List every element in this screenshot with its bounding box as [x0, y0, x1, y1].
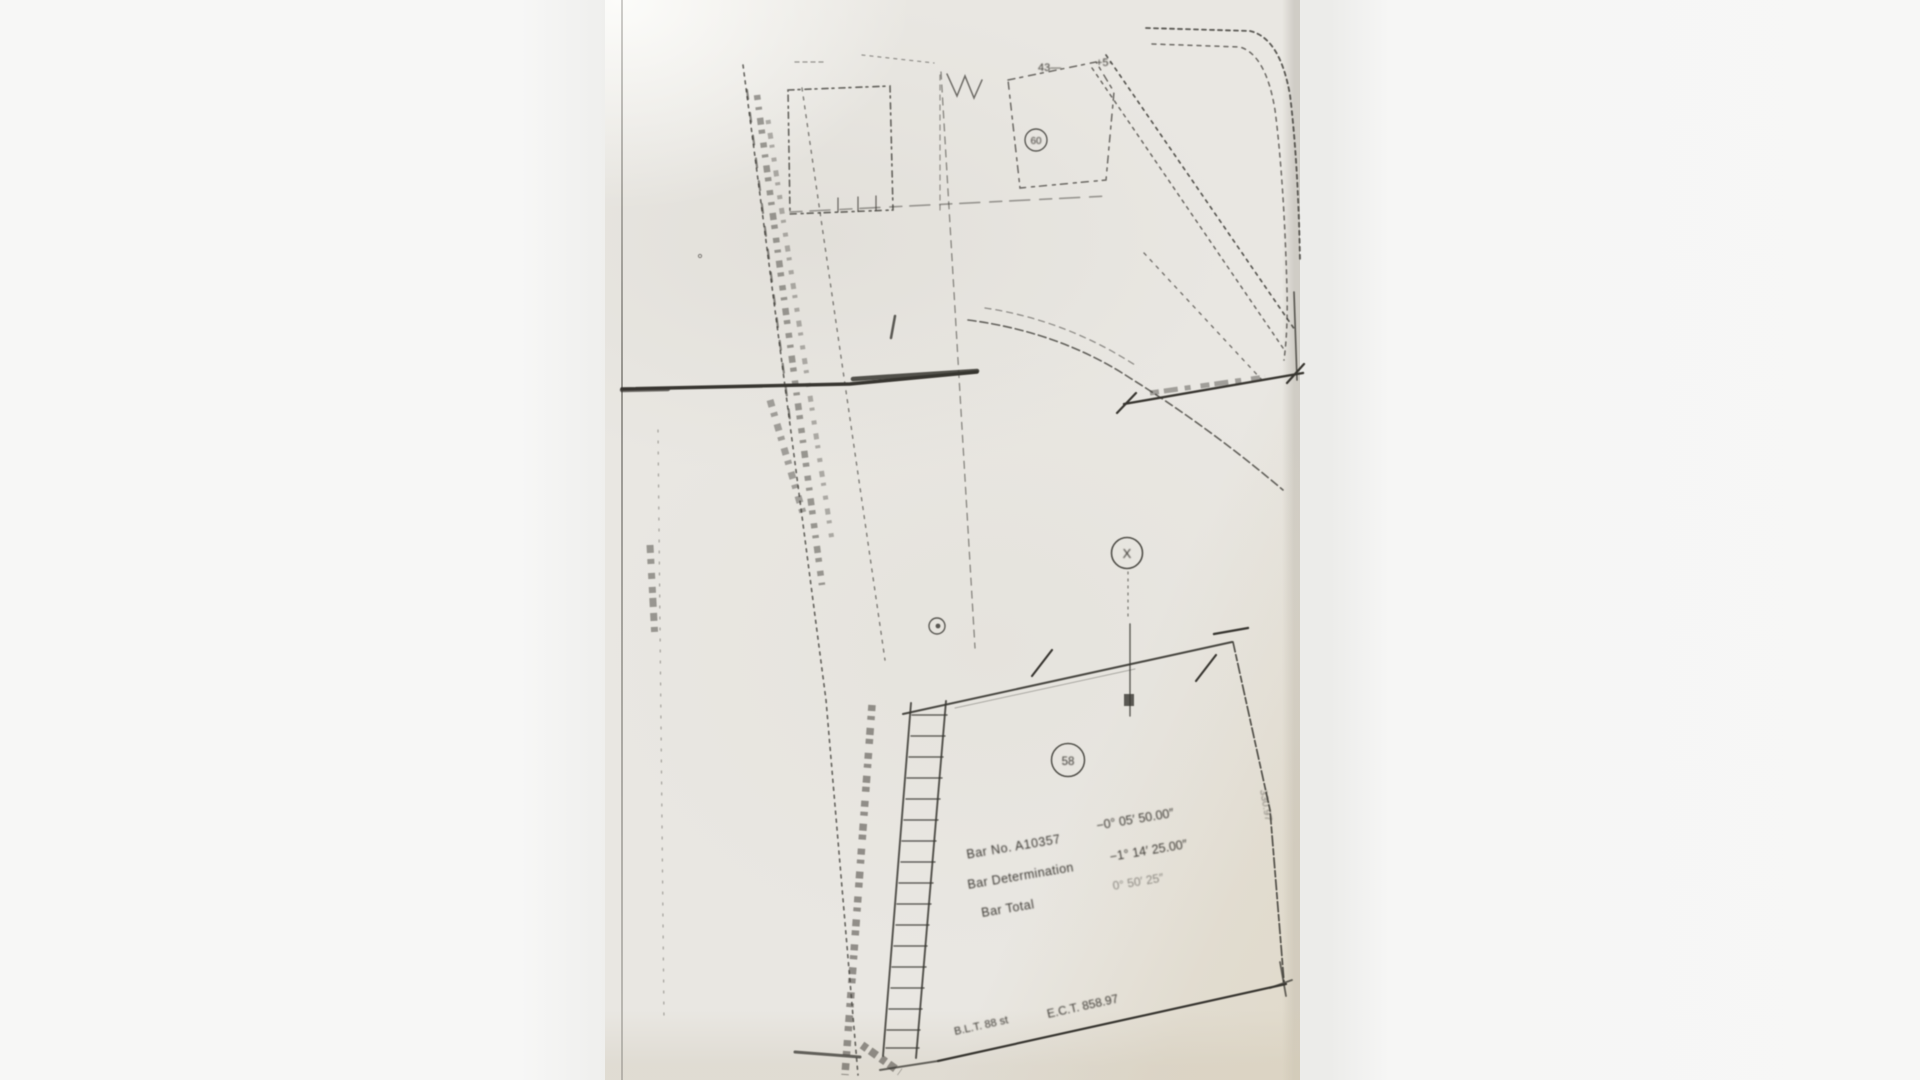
road-right-edge: [802, 88, 885, 660]
survey-line1-value: −0° 05′ 50.00″: [1095, 806, 1175, 833]
dimension-line: [1124, 373, 1303, 404]
dimension-end-tick: [1294, 292, 1297, 380]
parcel-tr-tbar: [1214, 628, 1248, 634]
diagonal-dotted-2: [1092, 68, 1283, 348]
ladder-rungs: [886, 715, 947, 1048]
survey-line1-label: Bar No. A10357: [965, 832, 1061, 862]
parcel-br-ticks: [1270, 962, 1292, 996]
bottom-left-dimension: B.L.T. 88 st: [953, 1014, 1009, 1038]
survey-line2-label: Bar Determination: [966, 860, 1074, 892]
branch-hook: [891, 316, 895, 338]
lot-number-text: 58: [1062, 756, 1075, 768]
scanned-survey-plat: 60 43— +5·: [0, 0, 1920, 1080]
parcel-top-edge: [903, 642, 1232, 714]
dashed-boundary-line: [941, 72, 975, 648]
curved-road-inner: [1152, 44, 1287, 360]
structure-rect-2: [1008, 62, 1114, 188]
scan-speck: [698, 254, 701, 257]
survey-line2-value: −1° 14′ 25.00″: [1109, 837, 1189, 864]
tract-badge-number: 60: [1030, 136, 1042, 147]
right-edge-dimension: 330.97: [1257, 788, 1274, 822]
parcel-top-edge-ghost: [955, 669, 1135, 708]
survey-text-block: Bar No. A10357 −0° 05′ 50.00″ Bar Determ…: [960, 805, 1194, 922]
scribble-m: [947, 74, 982, 98]
small-station-dot: [936, 624, 941, 629]
diagonal-dotted-1: [1106, 55, 1295, 330]
structure-rect-1: [788, 86, 893, 214]
lot-number-marks: [845, 705, 872, 1075]
plat-line-drawing: 60 43— +5·: [0, 0, 1920, 1080]
ladder-right-rail: [916, 701, 946, 1058]
faint-dotted-line: [658, 430, 664, 1020]
bottom-dimension: E.C.T. 858.97: [1046, 991, 1120, 1020]
station-marker-letter: X: [1123, 546, 1132, 561]
survey-line3-value: 0° 50′ 25″: [1112, 871, 1166, 893]
road-left-edge-dark: [747, 90, 790, 420]
parcel-right-edge: [1233, 642, 1284, 982]
left-margin-marks: [650, 545, 655, 640]
top-dash-2: [862, 55, 934, 63]
station-blob: [1124, 694, 1134, 706]
curved-road-outer: [1146, 28, 1300, 260]
diagonal-dotted-3: [1144, 253, 1262, 380]
ladder-left-rail: [883, 703, 911, 1056]
road-left-edge: [743, 65, 858, 1075]
branch-curve-2: [985, 308, 1135, 365]
top-left-annotation: 43—: [1038, 62, 1061, 74]
top-right-annotation: +5·: [1096, 57, 1112, 69]
section-line-left: [622, 389, 668, 390]
survey-line3-label: Bar Total: [980, 897, 1035, 920]
